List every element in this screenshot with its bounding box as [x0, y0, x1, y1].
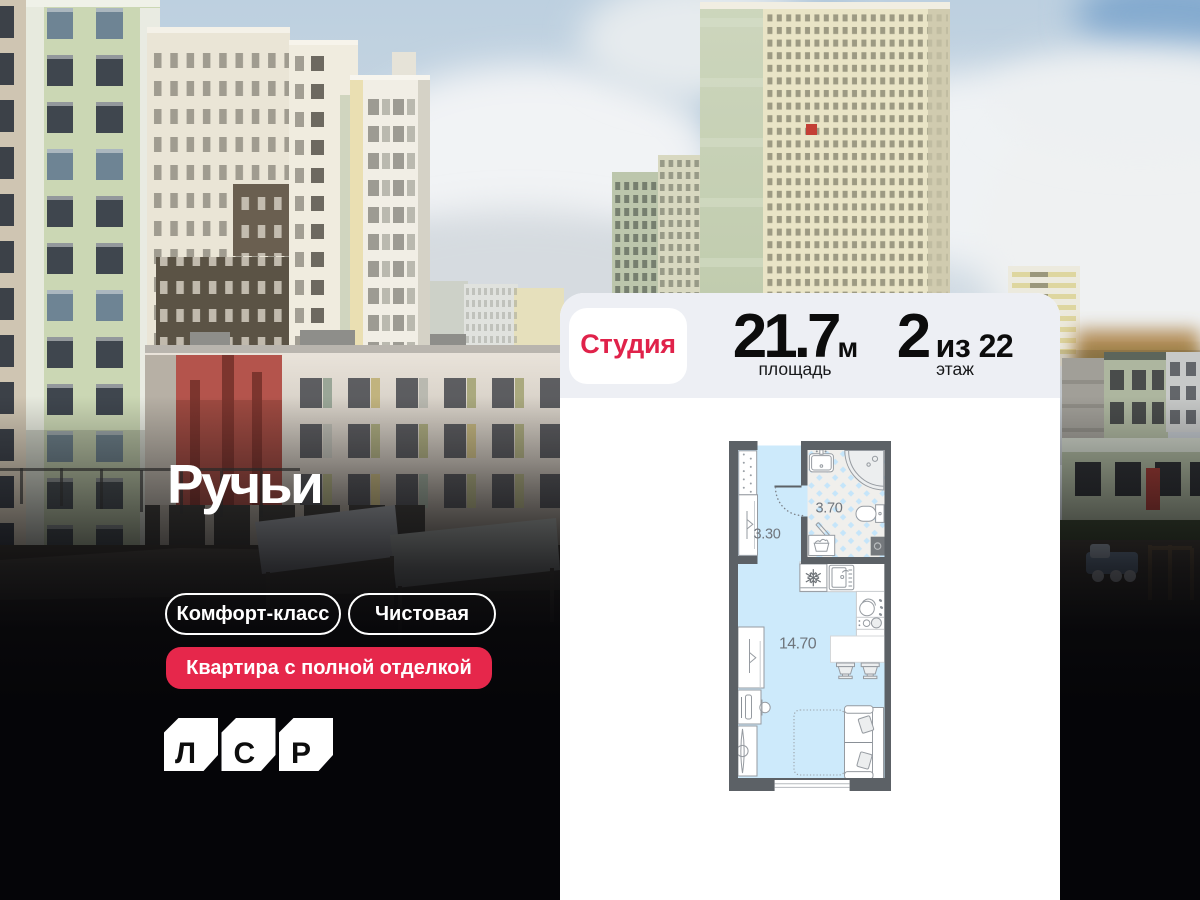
- svg-text:3.30: 3.30: [753, 527, 780, 543]
- svg-text:Л: Л: [175, 737, 196, 770]
- svg-text:Р: Р: [291, 737, 311, 770]
- svg-text:3.70: 3.70: [815, 501, 842, 517]
- svg-text:14.70: 14.70: [779, 636, 817, 653]
- svg-text:С: С: [234, 737, 256, 770]
